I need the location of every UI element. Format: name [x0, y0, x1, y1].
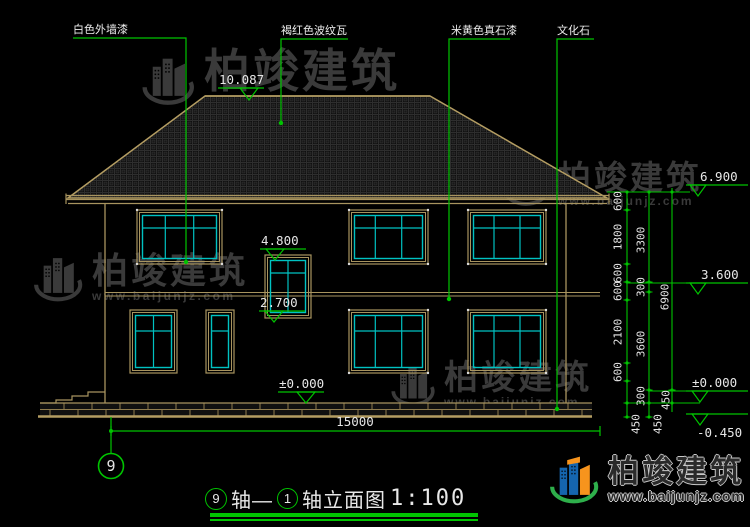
company-url: www.baijunjz.com: [608, 487, 745, 507]
plinth: [38, 392, 592, 417]
svg-text:600: 600: [612, 281, 625, 301]
company-logo-icon: [544, 452, 602, 510]
window-2f-left: [136, 209, 223, 265]
company-name: 柏竣建筑: [608, 456, 745, 487]
title-underline-thick: [210, 513, 478, 517]
svg-text:300: 300: [635, 386, 648, 406]
svg-text:600: 600: [612, 362, 625, 382]
title-scale: 1:100: [390, 486, 466, 511]
title-text: 轴立面图: [302, 484, 386, 513]
level-ridge: 10.087: [219, 72, 264, 87]
svg-text:600: 600: [612, 191, 625, 211]
svg-text:2100: 2100: [612, 319, 625, 346]
drawing-title: 9 轴— 1 轴立面图 1:100: [205, 484, 466, 513]
total-width-dim: 15000: [336, 414, 374, 429]
svg-text:600: 600: [612, 263, 625, 283]
company-logo: 柏竣建筑 www.baijunjz.com: [544, 452, 745, 510]
window-1f-narrow: [206, 310, 234, 373]
right-dimension-labels: 600 1800 600 600 2100 600 3300 300 3600 …: [612, 191, 673, 434]
label-wall-paint: 白色外墙漆: [73, 22, 128, 36]
svg-text:450: 450: [652, 414, 665, 434]
window-1f-middle: [348, 309, 429, 374]
window-1f-right: [467, 309, 547, 374]
axis-bubble-number: 9: [106, 457, 115, 475]
title-underline-thin: [210, 519, 478, 521]
label-roof-tile: 褐红色波纹瓦: [281, 23, 347, 37]
elevation-drawing: 白色外墙漆 褐红色波纹瓦 米黄色真石漆 文化石: [0, 0, 750, 527]
level-stair-btm: 2.700: [260, 295, 298, 310]
floor-band: [105, 293, 600, 297]
svg-text:6900: 6900: [659, 284, 672, 311]
svg-text:3300: 3300: [635, 227, 648, 254]
svg-text:450: 450: [660, 390, 673, 410]
axis-bubble-9: 9: [99, 417, 124, 479]
svg-text:450: 450: [630, 414, 643, 434]
title-axis-from: 9: [205, 488, 227, 510]
level-zero-right: ±0.000: [692, 375, 737, 390]
svg-text:300: 300: [635, 277, 648, 297]
level-ground: -0.450: [697, 425, 742, 440]
label-stone-paint: 米黄色真石漆: [451, 23, 517, 37]
entry-steps: [40, 392, 105, 403]
window-1f-left: [130, 310, 177, 373]
title-joiner: 轴—: [231, 484, 273, 513]
window-2f-middle: [348, 209, 429, 265]
title-axis-to: 1: [277, 488, 298, 509]
roof: [68, 96, 607, 198]
svg-text:1800: 1800: [612, 224, 625, 251]
cad-canvas: 柏竣建筑 www.baijunjz.com 柏竣建筑 www.baijunjz.…: [0, 0, 750, 527]
material-leaders: [73, 38, 594, 409]
svg-text:3600: 3600: [635, 331, 648, 358]
level-eave: 6.900: [700, 169, 738, 184]
window-2f-right: [467, 209, 547, 265]
level-second-floor: 3.600: [701, 267, 739, 282]
level-stair-top: 4.800: [261, 233, 299, 248]
roof-slope: [68, 96, 607, 198]
label-culture-stone: 文化石: [557, 23, 590, 37]
level-zero-center: ±0.000: [279, 376, 324, 391]
